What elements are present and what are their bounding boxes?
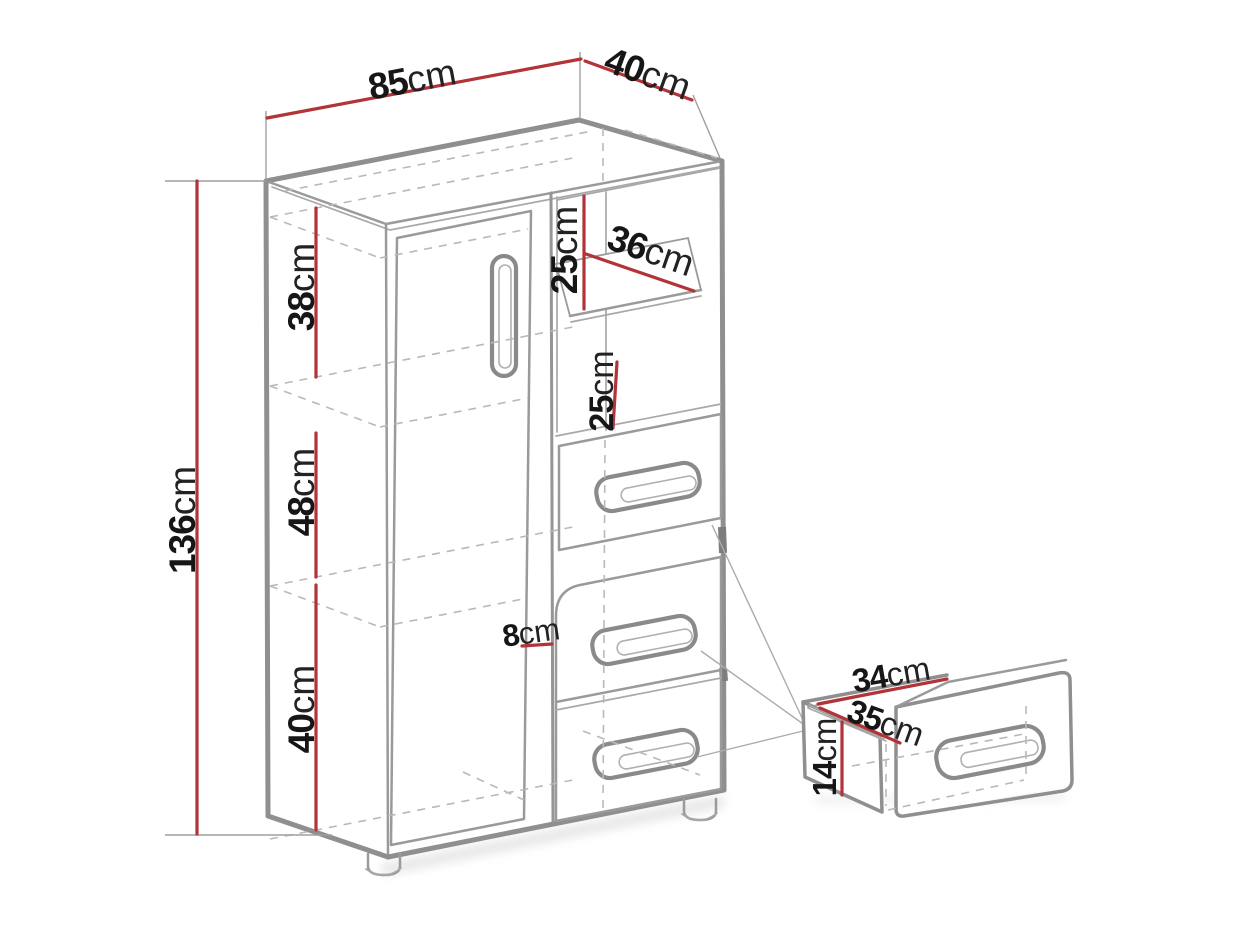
- side-notch-lower: [723, 668, 724, 681]
- door-handle: [492, 256, 516, 376]
- dim-label-width: 85cm: [365, 51, 459, 107]
- furniture-dimension-diagram: 85cm 40cm 136cm 38cm 48cm 40cm 25cm 36cm…: [0, 0, 1236, 927]
- dim-label-height: 136cm: [162, 466, 203, 574]
- dim-label-middle-section: 48cm: [281, 448, 322, 536]
- dim-label-upper-opening: 25cm: [544, 206, 585, 294]
- dim-label-lower-opening: 25cm: [583, 350, 621, 431]
- detached-drawer: 34cm 35cm 14cm: [803, 649, 1072, 817]
- dim-label-drawer-height: 14cm: [806, 718, 843, 797]
- dim-label-upper-section: 38cm: [281, 243, 322, 331]
- dim-label-lower-section: 40cm: [281, 665, 322, 753]
- dim-label-depth: 40cm: [599, 39, 696, 108]
- diagram-canvas: 85cm 40cm 136cm 38cm 48cm 40cm 25cm 36cm…: [0, 0, 1236, 927]
